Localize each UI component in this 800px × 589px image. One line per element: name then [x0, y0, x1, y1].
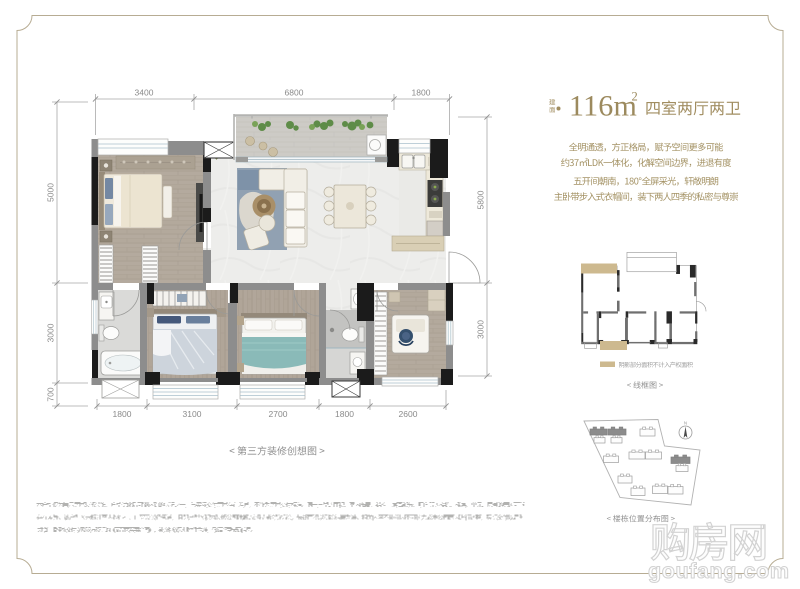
svg-text:3000: 3000: [476, 320, 486, 339]
svg-text:1800: 1800: [335, 409, 354, 419]
svg-text:N: N: [684, 421, 687, 426]
svg-text:3000: 3000: [46, 323, 56, 342]
svg-text:5800: 5800: [476, 190, 486, 209]
svg-text:3100: 3100: [183, 409, 202, 419]
svg-text:700: 700: [46, 387, 56, 401]
svg-text:6800: 6800: [285, 88, 304, 98]
svg-text:1800: 1800: [412, 88, 431, 98]
svg-text:2: 2: [632, 90, 638, 104]
svg-text:1800: 1800: [113, 409, 132, 419]
svg-text:goufang.com: goufang.com: [648, 559, 790, 583]
svg-text:2700: 2700: [269, 409, 288, 419]
svg-text:5000: 5000: [46, 183, 56, 202]
svg-text:3400: 3400: [135, 88, 154, 98]
svg-text:116m: 116m: [569, 90, 637, 123]
svg-text:2600: 2600: [399, 409, 418, 419]
